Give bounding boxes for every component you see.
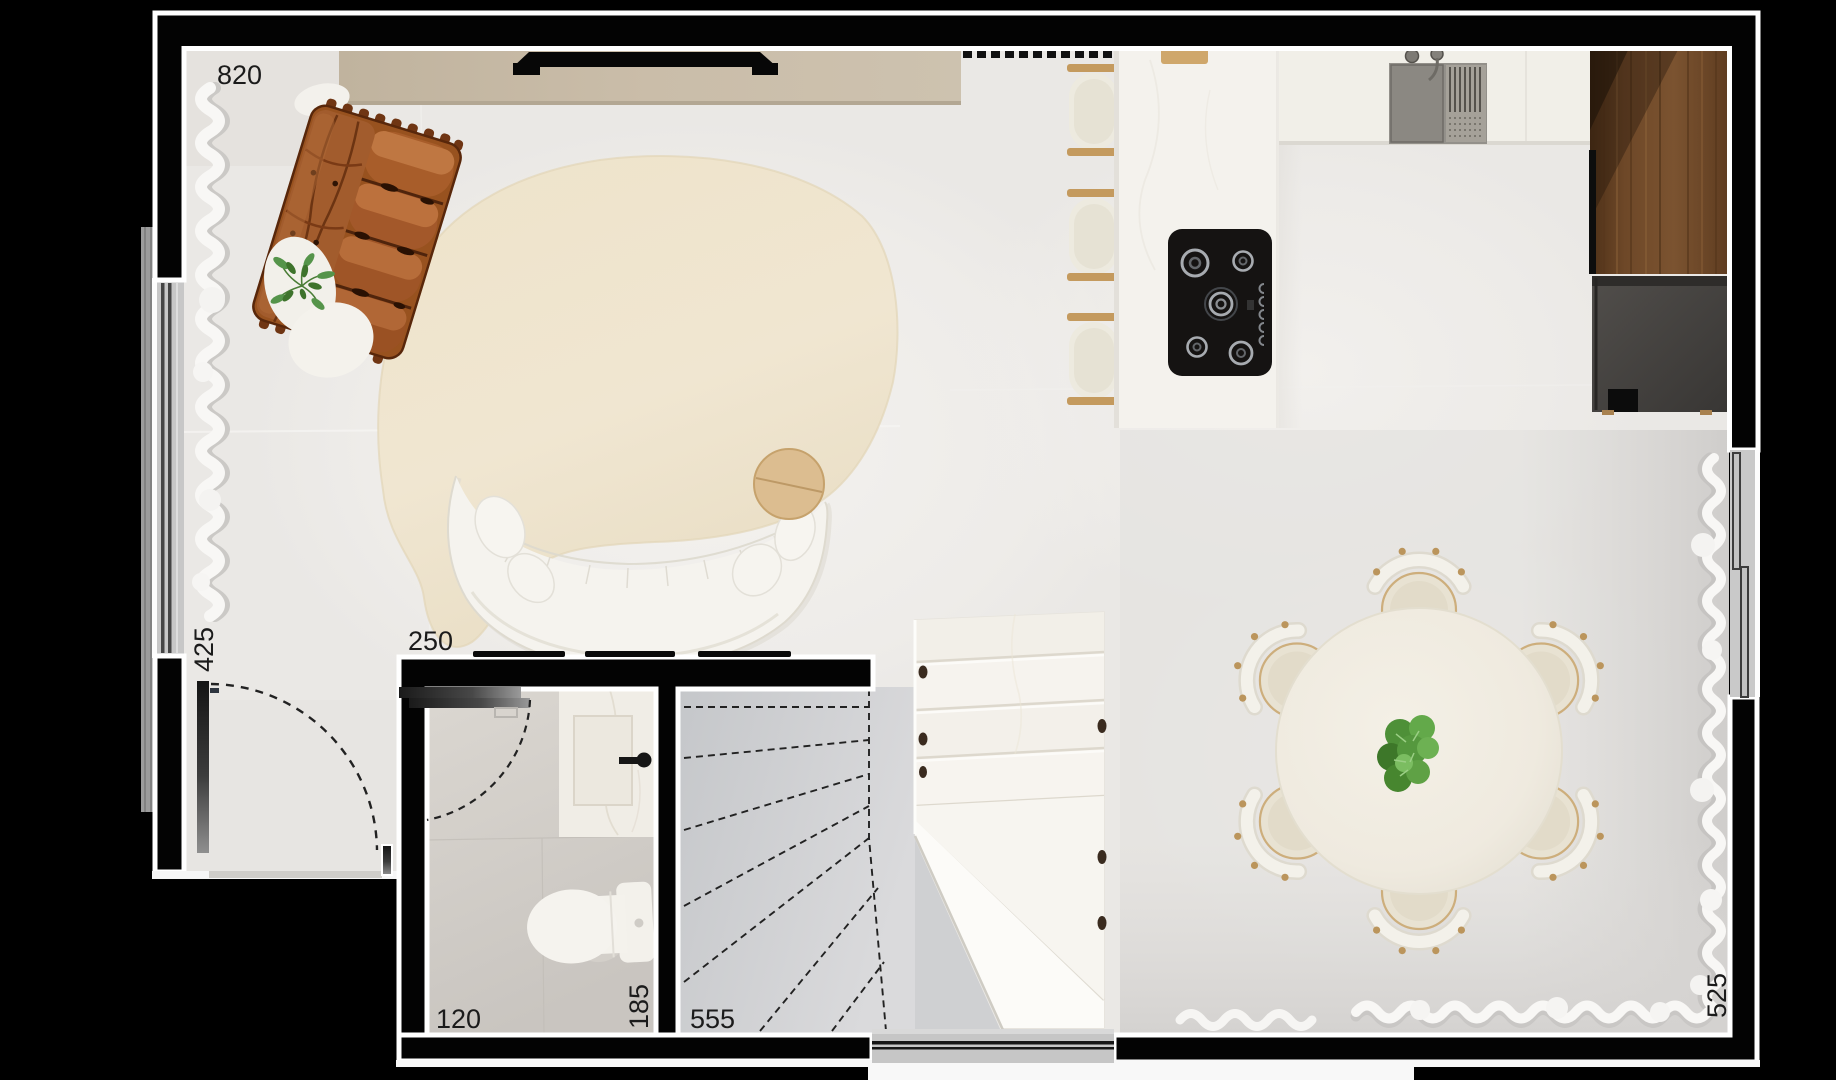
svg-text:185: 185 [624, 984, 654, 1029]
svg-text:120: 120 [436, 1004, 481, 1034]
svg-text:250: 250 [408, 626, 453, 656]
svg-text:555: 555 [690, 1004, 735, 1034]
svg-text:820: 820 [217, 60, 262, 90]
svg-text:425: 425 [189, 627, 219, 672]
svg-text:525: 525 [1702, 973, 1732, 1018]
